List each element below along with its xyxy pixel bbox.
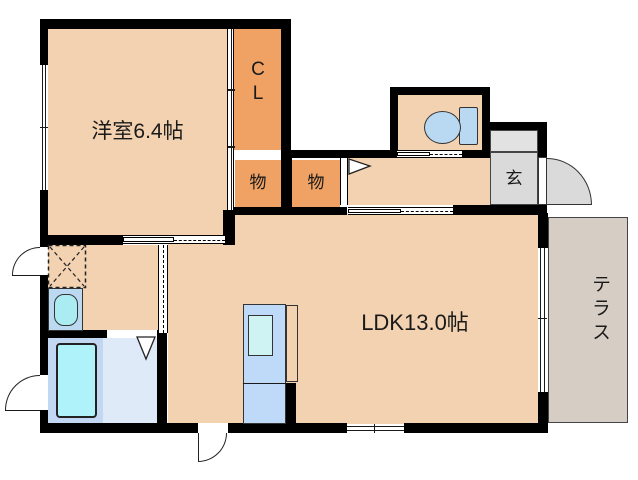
label-western-room: 洋室6.4帖 [60,120,215,144]
label-storage-1: 物 [235,173,281,193]
hallway-direction-arrow [349,159,370,174]
line-art-overlay [0,0,638,480]
label-ldk: LDK13.0帖 [340,310,490,335]
label-closet: C L [244,58,272,106]
floor-plan: 洋室6.4帖 C L 物 物 玄 LDK13.0帖 テラス [0,0,638,480]
bath-door-marker [137,337,155,359]
washing-machine-space [49,246,86,288]
label-storage-2: 物 [292,173,340,193]
label-terrace: テラス [566,274,610,384]
label-entrance: 玄 [490,169,538,189]
